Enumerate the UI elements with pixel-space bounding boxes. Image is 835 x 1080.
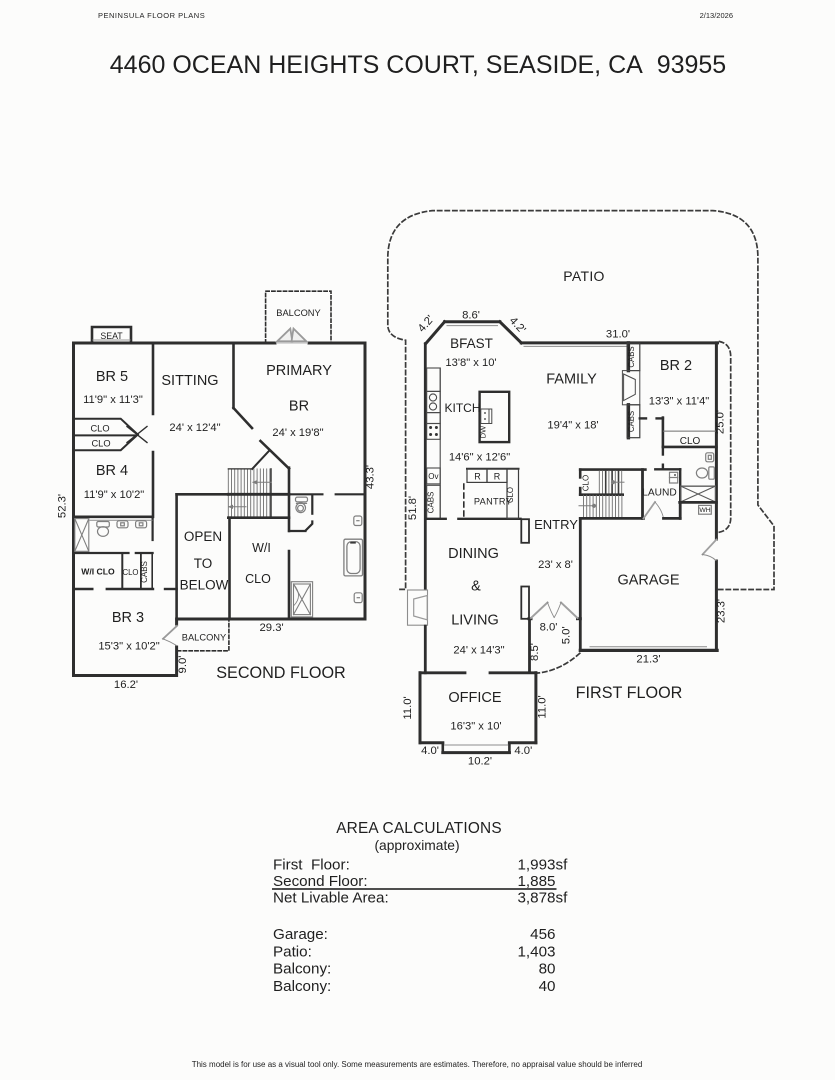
svg-text:1,885: 1,885 [517, 873, 555, 890]
svg-text:40: 40 [539, 978, 556, 995]
svg-text:19'4" x 18': 19'4" x 18' [547, 420, 598, 432]
svg-text:16'3" x 10': 16'3" x 10' [450, 721, 501, 733]
svg-text:DINING: DINING [448, 546, 499, 562]
svg-text:1,403: 1,403 [517, 943, 555, 960]
svg-text:LAUND: LAUND [642, 488, 677, 499]
svg-text:ENTRY: ENTRY [534, 517, 578, 532]
svg-text:3,878: 3,878 [517, 890, 555, 907]
svg-text:11'9" x 10'2": 11'9" x 10'2" [84, 489, 145, 501]
svg-text:SITTING: SITTING [161, 373, 218, 389]
svg-text:Second Floor:: Second Floor: [273, 873, 368, 890]
svg-text:PATIO: PATIO [563, 268, 604, 284]
svg-text:BALCONY: BALCONY [276, 308, 320, 318]
svg-text:FAMILY: FAMILY [546, 372, 597, 388]
svg-text:First Floor:: First Floor: [273, 857, 350, 874]
svg-text:W/I CLO: W/I CLO [81, 567, 115, 577]
svg-text:456: 456 [530, 926, 555, 943]
svg-text:13'8" x 10': 13'8" x 10' [445, 357, 496, 369]
svg-text:CLO: CLO [91, 439, 110, 449]
svg-text:BR 4: BR 4 [96, 463, 128, 479]
svg-text:CLO: CLO [582, 475, 591, 491]
svg-text:BR 5: BR 5 [96, 369, 128, 385]
svg-text:2/13/2026: 2/13/2026 [700, 11, 733, 20]
svg-text:23' x 8': 23' x 8' [538, 559, 573, 571]
svg-text:BALCONY: BALCONY [182, 633, 226, 643]
svg-text:11.0': 11.0' [402, 696, 414, 719]
svg-text:Balcony:: Balcony: [273, 961, 331, 978]
svg-text:25.0': 25.0' [715, 410, 727, 434]
svg-text:4.0': 4.0' [421, 745, 439, 757]
svg-text:PANTRY: PANTRY [474, 497, 512, 507]
svg-text:29.3': 29.3' [260, 622, 284, 634]
svg-text:Ov: Ov [428, 472, 438, 481]
svg-text:52.3': 52.3' [56, 494, 68, 518]
svg-text:43.3': 43.3' [365, 465, 377, 489]
svg-text:CLO: CLO [122, 568, 138, 577]
svg-text:GARAGE: GARAGE [617, 573, 679, 589]
svg-text:&: & [471, 579, 481, 595]
svg-text:BR 2: BR 2 [660, 358, 692, 374]
svg-text:16.2': 16.2' [114, 679, 138, 691]
svg-text:LIVING: LIVING [451, 613, 499, 629]
svg-text:4460 OCEAN HEIGHTS COURT, SEAS: 4460 OCEAN HEIGHTS COURT, SEASIDE, CA 93… [110, 51, 726, 79]
svg-text:DW: DW [479, 425, 488, 438]
svg-text:13'3" x 11'4": 13'3" x 11'4" [649, 396, 710, 408]
svg-text:CABS: CABS [427, 492, 436, 514]
svg-text:4.0': 4.0' [514, 745, 532, 757]
svg-text:This model is for use as a vis: This model is for use as a visual tool o… [192, 1060, 643, 1069]
svg-text:9.0': 9.0' [177, 656, 189, 674]
svg-text:TO: TO [194, 556, 213, 571]
svg-text:10.2': 10.2' [468, 756, 492, 768]
svg-text:5.0': 5.0' [561, 626, 573, 644]
svg-text:CLO: CLO [90, 424, 109, 434]
svg-text:Net Livable Area:: Net Livable Area: [273, 890, 389, 907]
svg-text:BELOW: BELOW [180, 578, 229, 593]
svg-text:8.6': 8.6' [462, 310, 480, 322]
svg-text:KITCH: KITCH [445, 401, 481, 415]
svg-text:BR: BR [289, 399, 309, 415]
svg-text:CABS: CABS [140, 561, 149, 583]
svg-text:15'3" x 10'2": 15'3" x 10'2" [98, 641, 159, 653]
svg-text:24' x 12'4": 24' x 12'4" [169, 422, 220, 434]
svg-text:OFFICE: OFFICE [448, 690, 501, 706]
svg-text:11'9" x 11'3": 11'9" x 11'3" [83, 394, 143, 406]
svg-text:R: R [494, 472, 501, 482]
svg-text:24' x 19'8": 24' x 19'8" [272, 427, 323, 439]
svg-text:CLO: CLO [680, 436, 701, 447]
svg-text:AREA CALCULATIONS: AREA CALCULATIONS [336, 820, 502, 837]
svg-text:R: R [474, 472, 481, 482]
svg-text:(approximate): (approximate) [374, 838, 459, 853]
svg-text:OPEN: OPEN [184, 529, 222, 544]
svg-text:14'6" x 12'6": 14'6" x 12'6" [449, 452, 510, 464]
svg-text:BFAST: BFAST [450, 336, 493, 351]
svg-text:SECOND FLOOR: SECOND FLOOR [216, 664, 346, 682]
svg-text:sf: sf [556, 857, 569, 874]
svg-text:31.0': 31.0' [606, 329, 630, 341]
svg-text:PENINSULA FLOOR PLANS: PENINSULA FLOOR PLANS [98, 11, 205, 20]
svg-text:Garage:: Garage: [273, 926, 328, 943]
svg-text:80: 80 [539, 961, 556, 978]
svg-text:Balcony:: Balcony: [273, 978, 331, 995]
svg-text:CLO: CLO [245, 572, 271, 586]
svg-text:8.5': 8.5' [529, 643, 541, 661]
svg-text:23.3': 23.3' [716, 599, 728, 623]
svg-text:21.3': 21.3' [636, 654, 660, 666]
svg-text:24' x 14'3": 24' x 14'3" [453, 645, 504, 657]
svg-text:8.0': 8.0' [540, 622, 558, 634]
svg-text:sf: sf [556, 890, 569, 907]
svg-text:WH: WH [699, 507, 710, 514]
svg-text:CABS: CABS [627, 411, 636, 432]
svg-text:SEAT: SEAT [100, 331, 123, 341]
svg-text:51.8': 51.8' [407, 496, 419, 520]
svg-text:CABS: CABS [627, 346, 636, 367]
svg-text:1,993: 1,993 [517, 857, 555, 874]
svg-text:11.0': 11.0' [537, 695, 549, 718]
svg-text:W/I: W/I [252, 541, 271, 555]
svg-text:BR 3: BR 3 [112, 610, 144, 626]
svg-text:Patio:: Patio: [273, 943, 312, 960]
svg-text:PRIMARY: PRIMARY [266, 363, 332, 379]
svg-text:FIRST FLOOR: FIRST FLOOR [576, 684, 683, 702]
